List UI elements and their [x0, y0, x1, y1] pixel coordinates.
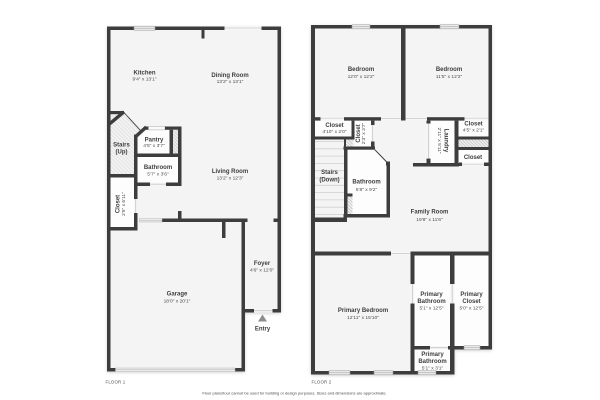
svg-text:Primary: Primary: [421, 352, 444, 358]
svg-text:(Up): (Up): [116, 150, 128, 156]
svg-text:Garage: Garage: [167, 292, 188, 298]
svg-text:Stairs: Stairs: [321, 170, 338, 176]
svg-text:Primary Bedroom: Primary Bedroom: [338, 308, 388, 314]
svg-text:5'1" x 3'1": 5'1" x 3'1": [422, 366, 444, 372]
svg-text:Closet: Closet: [116, 195, 122, 213]
svg-text:2'5" x 6'11": 2'5" x 6'11": [121, 192, 127, 216]
svg-text:Primary: Primary: [460, 292, 483, 298]
svg-text:Pantry: Pantry: [145, 138, 164, 144]
svg-text:Closet: Closet: [464, 122, 482, 128]
svg-text:Foyer: Foyer: [254, 261, 271, 267]
svg-text:5'8" x 9'2": 5'8" x 9'2": [356, 187, 378, 193]
svg-text:Primary: Primary: [420, 292, 443, 298]
svg-text:13'2" x 12'3": 13'2" x 12'3": [217, 176, 244, 182]
svg-text:Bathroom: Bathroom: [144, 165, 172, 171]
svg-text:Living Room: Living Room: [212, 169, 248, 175]
svg-text:4'5" x 2'1": 4'5" x 2'1": [463, 128, 485, 134]
svg-text:5'7" x 3'6": 5'7" x 3'6": [147, 172, 169, 178]
svg-text:4'5" x 3'7": 4'5" x 3'7": [143, 143, 165, 149]
svg-text:Closet: Closet: [325, 123, 343, 129]
svg-text:11'5" x 12'2": 11'5" x 12'2": [436, 74, 463, 80]
svg-text:19'8" x 11'6": 19'8" x 11'6": [416, 217, 443, 223]
svg-text:Closet: Closet: [464, 155, 482, 161]
svg-text:Entry: Entry: [255, 327, 271, 333]
svg-text:Bathroom: Bathroom: [418, 359, 446, 365]
svg-text:12'0" x 12'2": 12'0" x 12'2": [348, 74, 375, 80]
svg-text:Floor plans/tour cannot be use: Floor plans/tour cannot be used for buil…: [202, 391, 386, 396]
svg-text:5'1" x 12'5": 5'1" x 12'5": [419, 306, 443, 312]
svg-text:Dining Room: Dining Room: [211, 73, 248, 79]
svg-text:Bedroom: Bedroom: [348, 67, 374, 73]
svg-text:4'6" x 12'0": 4'6" x 12'0": [250, 268, 274, 274]
svg-text:FLOOR 1: FLOOR 1: [106, 380, 126, 385]
svg-text:Bathroom: Bathroom: [352, 180, 380, 186]
svg-text:(Down): (Down): [319, 178, 339, 184]
svg-text:Kitchen: Kitchen: [133, 71, 155, 77]
svg-text:12'11" x 15'10": 12'11" x 15'10": [347, 315, 379, 321]
svg-text:4'10" x 2'0": 4'10" x 2'0": [322, 129, 346, 135]
svg-text:Closet: Closet: [462, 299, 480, 305]
svg-text:2'11" x 5'11": 2'11" x 5'11": [436, 127, 442, 153]
svg-text:Laundry: Laundry: [443, 129, 449, 153]
svg-text:Bathroom: Bathroom: [417, 299, 445, 305]
svg-text:Bedroom: Bedroom: [436, 67, 462, 73]
svg-text:Stairs: Stairs: [113, 143, 130, 149]
svg-text:9'4" x 13'1": 9'4" x 13'1": [132, 77, 156, 83]
svg-text:5'0" x 12'5": 5'0" x 12'5": [459, 306, 483, 312]
svg-text:18'0" x 20'1": 18'0" x 20'1": [164, 299, 191, 305]
svg-text:13'2" x 13'1": 13'2" x 13'1": [217, 79, 244, 85]
svg-text:FLOOR 2: FLOOR 2: [312, 380, 332, 385]
svg-text:2'3" x 3'7": 2'3" x 3'7": [361, 123, 367, 145]
svg-text:Family Room: Family Room: [411, 210, 449, 216]
